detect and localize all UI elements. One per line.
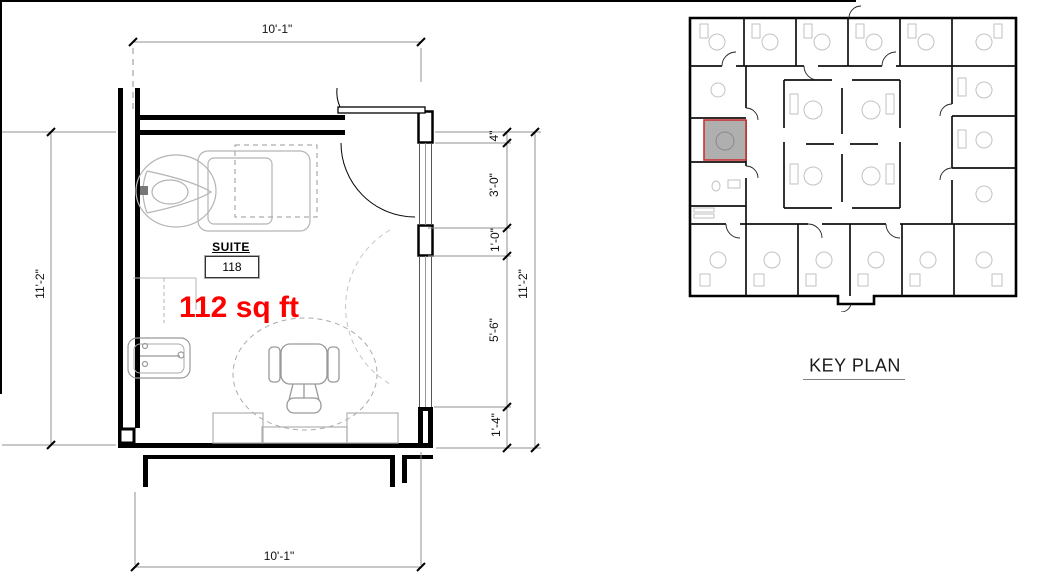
dim-left-label: 11'-2" xyxy=(33,269,47,299)
column-post xyxy=(120,429,134,443)
dim-right-overall-label: 11'-2" xyxy=(516,269,530,299)
key-plan-drawing xyxy=(686,2,1026,312)
key-plan-title: KEY PLAN xyxy=(809,356,901,377)
dim-chain-4in: 4" xyxy=(487,131,501,142)
base-cabinets xyxy=(213,413,398,443)
dim-top-label: 10'-1" xyxy=(262,22,293,36)
suite-name-label: SUITE xyxy=(212,240,250,254)
suite-number-label: 118 xyxy=(222,260,241,274)
dim-chain-1ft4: 1'-4" xyxy=(489,413,503,437)
key-plan-outline xyxy=(690,18,1016,304)
drawing-sheet: 10'-1" 10'-1" 11'-2" 11'-2" 4" 3'-0" 1'-… xyxy=(0,0,1037,587)
dim-chain-1ft: 1'-0" xyxy=(488,228,502,252)
equipment-clearance-box xyxy=(235,145,317,217)
area-label: 112 sq ft xyxy=(179,291,299,325)
operator-stool-icon xyxy=(269,344,339,413)
dim-chain-3ft: 3'-0" xyxy=(487,173,501,197)
suite-floor-plan xyxy=(0,0,600,587)
door-clearance-arc xyxy=(346,230,390,384)
key-plan-highlight xyxy=(704,120,746,160)
key-plan-title-underline xyxy=(803,379,905,380)
storefront-glazing xyxy=(418,112,433,449)
entry-door xyxy=(337,88,425,217)
dim-chain-5ft6: 5'-6" xyxy=(487,318,501,342)
suite-number-box: 118 xyxy=(205,256,259,278)
dental-chair-icon xyxy=(136,151,310,231)
dim-bottom-label: 10'-1" xyxy=(264,549,295,563)
